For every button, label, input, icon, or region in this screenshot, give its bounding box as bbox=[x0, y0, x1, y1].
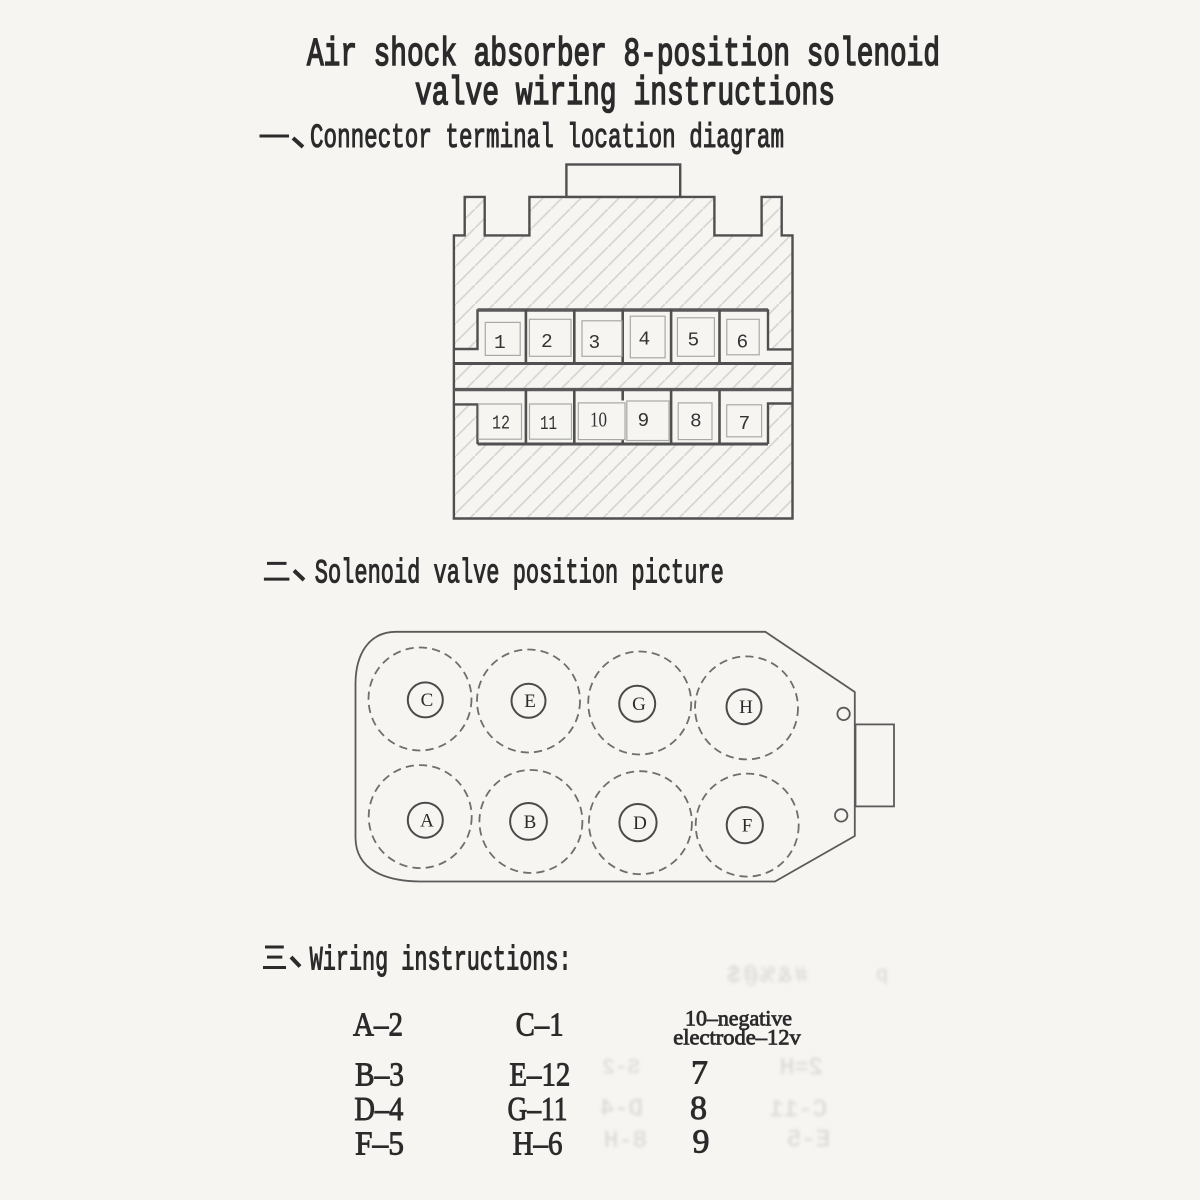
svg-text:7: 7 bbox=[739, 413, 751, 435]
svg-text:C-11: C-11 bbox=[769, 1097, 827, 1124]
svg-text:C–1: C–1 bbox=[516, 1007, 564, 1044]
svg-text:H–6: H–6 bbox=[513, 1125, 563, 1162]
svg-text:S-2: S-2 bbox=[602, 1057, 640, 1080]
svg-text:valve wiring instructions: valve wiring instructions bbox=[415, 72, 835, 117]
svg-text:9: 9 bbox=[693, 1124, 710, 1161]
svg-text:electrode–12v: electrode–12v bbox=[673, 1025, 801, 1050]
svg-text:E–12: E–12 bbox=[509, 1057, 570, 1094]
svg-text:4: 4 bbox=[639, 329, 651, 351]
svg-text:12: 12 bbox=[492, 413, 510, 435]
svg-text:8-H: 8-H bbox=[604, 1128, 647, 1155]
svg-text:C: C bbox=[421, 690, 434, 711]
svg-text:B: B bbox=[524, 812, 537, 833]
svg-text:F: F bbox=[742, 816, 753, 837]
svg-text:G: G bbox=[632, 694, 646, 715]
svg-text:G–11: G–11 bbox=[508, 1091, 568, 1128]
svg-text:8: 8 bbox=[690, 411, 702, 433]
svg-text:Solenoid valve position pictur: Solenoid valve position picture bbox=[315, 556, 724, 594]
svg-text:F–5: F–5 bbox=[355, 1125, 404, 1162]
svg-text:p: p bbox=[876, 964, 888, 987]
svg-text:D–4: D–4 bbox=[354, 1091, 403, 1128]
svg-text:8: 8 bbox=[690, 1090, 707, 1127]
svg-text:D: D bbox=[633, 813, 647, 834]
svg-text:11: 11 bbox=[540, 413, 557, 435]
svg-text:H: H bbox=[739, 697, 753, 718]
svg-text:#&%@$: #&%@$ bbox=[724, 963, 808, 989]
svg-text:10: 10 bbox=[590, 408, 607, 432]
svg-text:A: A bbox=[420, 811, 434, 832]
svg-text:9: 9 bbox=[638, 410, 650, 432]
svg-text:Connector terminal location di: Connector terminal location diagram bbox=[310, 120, 784, 158]
svg-text:A–2: A–2 bbox=[353, 1007, 403, 1044]
svg-text:Wiring instructions:: Wiring instructions: bbox=[310, 943, 572, 981]
svg-text:2: 2 bbox=[541, 331, 553, 353]
svg-text:7: 7 bbox=[691, 1055, 708, 1092]
svg-text:6: 6 bbox=[737, 332, 749, 354]
svg-text:1: 1 bbox=[494, 332, 506, 354]
svg-text:E: E bbox=[524, 691, 536, 712]
svg-text:B–3: B–3 bbox=[355, 1057, 404, 1094]
svg-text:2=H: 2=H bbox=[780, 1055, 823, 1082]
svg-text:3: 3 bbox=[589, 332, 601, 354]
svg-text:5: 5 bbox=[688, 330, 700, 352]
svg-text:D-4: D-4 bbox=[600, 1096, 643, 1123]
svg-text:E-5: E-5 bbox=[787, 1127, 830, 1154]
